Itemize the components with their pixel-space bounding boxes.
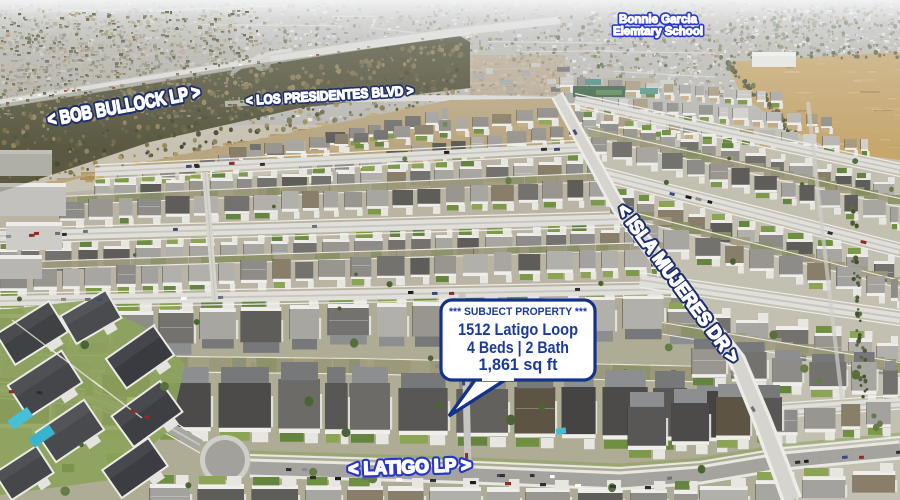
svg-text:1512 Latigo Loop: 1512 Latigo Loop (458, 321, 578, 339)
svg-text:*** SUBJECT PROPERTY ***: *** SUBJECT PROPERTY *** (449, 306, 588, 318)
svg-text:Bonnie Garcia: Bonnie Garcia (619, 14, 698, 26)
svg-text:< LATIGO LP >: < LATIGO LP > (348, 454, 472, 479)
svg-text:4 Beds | 2 Bath: 4 Beds | 2 Bath (467, 339, 569, 357)
svg-text:1,861 sq ft: 1,861 sq ft (479, 356, 558, 374)
svg-text:Elemtary School: Elemtary School (613, 26, 703, 38)
